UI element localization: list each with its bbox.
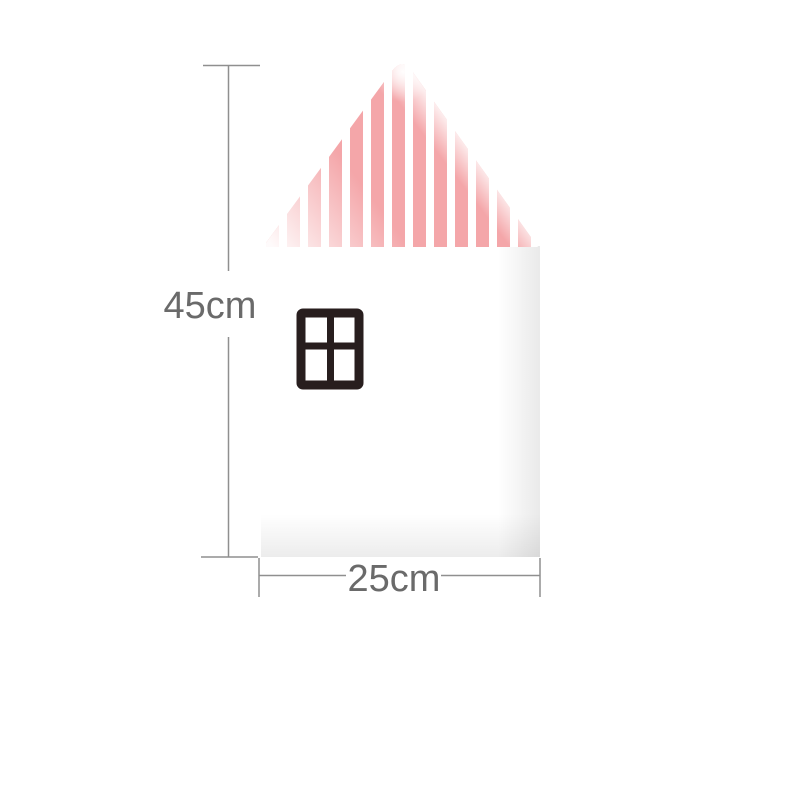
diagram-canvas: 45cm 25cm [0, 0, 800, 800]
product-dimension-diagram: 45cm 25cm [0, 0, 800, 800]
house-body-right-shadow [498, 246, 540, 557]
width-dimension-label: 25cm [348, 558, 441, 600]
house-body-bottom-shadow [261, 514, 540, 557]
height-dimension-label: 45cm [164, 285, 257, 327]
